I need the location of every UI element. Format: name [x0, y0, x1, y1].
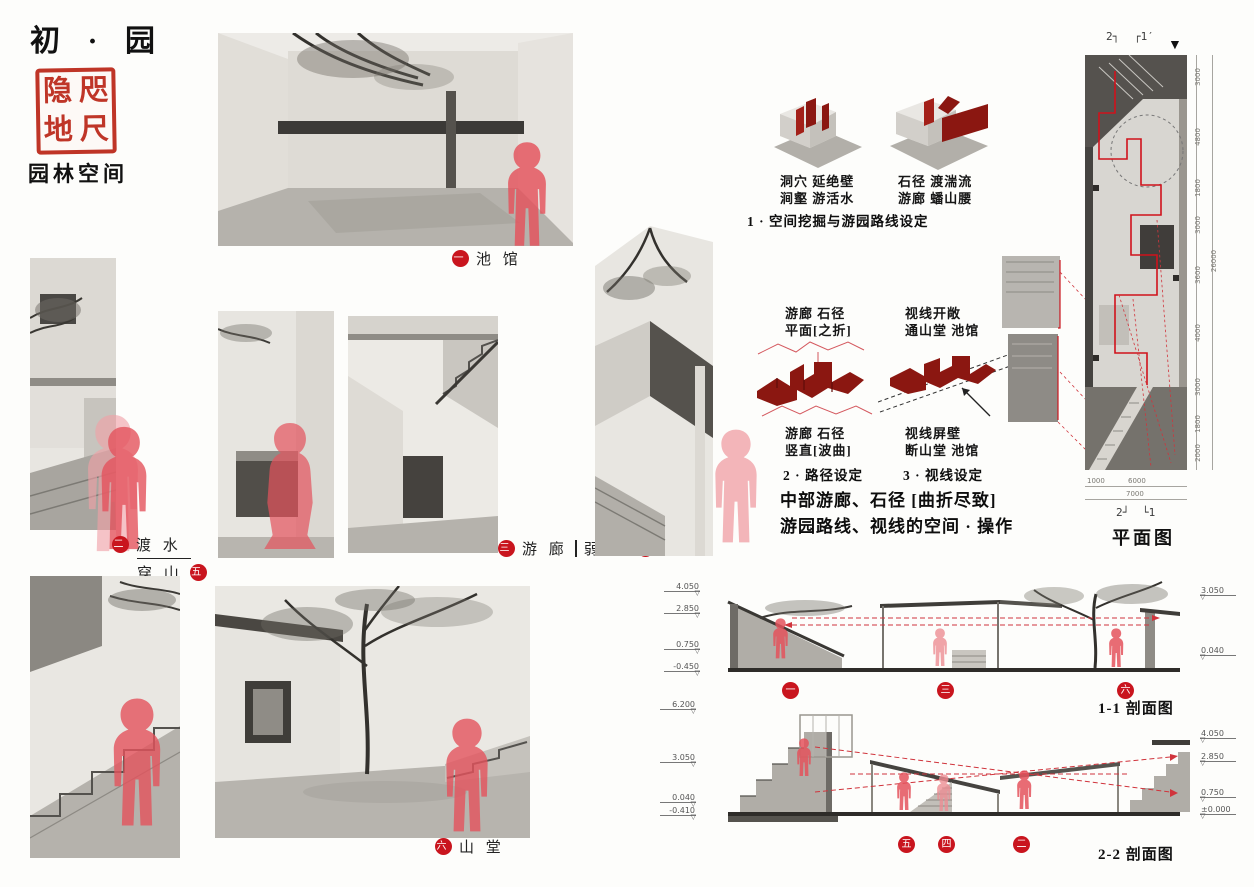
- caption-stonepath: 石径 渡湍流 游廊 蟠山腰: [898, 174, 972, 208]
- axon-diagram-cave: [766, 92, 866, 170]
- level-marker: 4.050▽: [1200, 729, 1236, 743]
- step2-caption-bottom: 游廊 石径 竖直[波曲]: [785, 426, 852, 460]
- label-vertical-divider: [575, 540, 577, 557]
- dim-value: 3000: [1194, 209, 1202, 241]
- step3-caption-bottom: 视线屏壁 断山堂 池馆: [905, 426, 979, 460]
- red-seal-stamp: 隐 咫 地 尺: [35, 67, 116, 154]
- page-title: 初 · 园: [30, 16, 165, 60]
- step2-caption-top: 游廊 石径 平面[之折]: [785, 306, 852, 340]
- number-badge: 五: [898, 836, 915, 853]
- step1-title: 1 · 空间挖掘与游园路线设定: [747, 210, 929, 230]
- level-marker: -0.410▽: [660, 806, 696, 820]
- plan-label: 平面图: [1112, 524, 1175, 550]
- section-marker-bottom-left: 2┘: [1116, 506, 1129, 519]
- number-badge: 一: [782, 682, 799, 699]
- caption-cave: 洞穴 延绝壁 涧壑 游活水: [780, 174, 854, 208]
- sketch-tall-passage: [595, 226, 713, 556]
- level-marker: 0.040▽: [660, 793, 696, 807]
- seal-char: 地: [44, 116, 74, 146]
- number-badge: 二: [112, 536, 129, 553]
- label-pool-pavilion: 一 池 馆: [452, 248, 522, 269]
- section-marker-bottom-right: └1: [1142, 506, 1155, 519]
- level-marker: ±0.000▽: [1200, 805, 1236, 819]
- label-divider: [137, 558, 191, 559]
- dim-value: 2000: [1194, 437, 1202, 469]
- summary-text: 中部游廊、石径 [曲折尽致] 游园路线、视线的空间 · 操作: [780, 488, 1013, 539]
- presentation-board: 初 · 园 隐 咫 地 尺 园林空间 一 池 馆: [0, 0, 1254, 887]
- step2-title: 2 · 路径设定: [783, 464, 863, 484]
- section-2-2-label: 2-2 剖面图: [1098, 843, 1174, 864]
- pink-figure-profile: [712, 412, 760, 560]
- plan-drawing: [1085, 55, 1187, 470]
- dim-value: 4800: [1194, 121, 1202, 153]
- section-marker-top-left: 2┐: [1106, 30, 1119, 43]
- sightline-diagram: [878, 330, 1018, 430]
- sketch-stair-court: [30, 576, 180, 858]
- level-marker: 3.050▽: [660, 753, 696, 767]
- label-text: 游 廊: [522, 538, 568, 559]
- dimension-line: [1085, 486, 1187, 487]
- sketch-left-wall: [30, 258, 116, 530]
- path-diagram: [752, 336, 880, 432]
- axon-diagram-stonepath: [884, 88, 992, 176]
- sketch-niche: [218, 311, 334, 558]
- label-text: 池 馆: [476, 248, 522, 269]
- page-subtitle: 园林空间: [28, 158, 128, 188]
- level-marker: 3.050▽: [1200, 586, 1236, 600]
- number-badge: 二: [1013, 836, 1030, 853]
- level-marker: 0.040▽: [1200, 646, 1236, 660]
- label-text: 渡 水: [136, 534, 182, 555]
- seal-char: 咫: [79, 76, 109, 106]
- number-badge: 一: [452, 250, 469, 267]
- dim-value: 1000: [1087, 477, 1105, 485]
- number-badge: 三: [498, 540, 515, 557]
- dim-value: 3000: [1194, 61, 1202, 93]
- section-1-1-drawing: [700, 578, 1200, 688]
- dim-value: 4000: [1194, 317, 1202, 349]
- dim-value: 6000: [1128, 477, 1146, 485]
- level-marker: 6.200▽: [660, 700, 696, 714]
- level-marker: 0.750▽: [1200, 788, 1236, 802]
- sketch-pool-pavilion: [218, 33, 573, 246]
- level-marker: -0.450▽: [664, 662, 700, 676]
- level-marker: 0.750▽: [664, 640, 700, 654]
- seal-char: 尺: [80, 115, 110, 145]
- level-marker: 2.850▽: [1200, 752, 1236, 766]
- dim-total: 26000: [1210, 245, 1218, 277]
- number-badge: 五: [190, 564, 207, 581]
- dim-value: 3000: [1194, 371, 1202, 403]
- north-arrow-icon: ▼: [1168, 38, 1182, 54]
- dim-value: 1800: [1194, 408, 1202, 440]
- sketch-stair-hall: [348, 316, 498, 553]
- section-marker-top-right: ┌1′: [1134, 30, 1154, 43]
- level-marker: 4.050▽: [664, 582, 700, 596]
- dimension-line-total: [1085, 499, 1187, 500]
- level-marker: 2.850▽: [664, 604, 700, 618]
- seal-char: 隐: [43, 77, 73, 107]
- number-badge: 四: [938, 836, 955, 853]
- section-2-2-drawing: [700, 712, 1200, 837]
- dim-value: 3600: [1194, 259, 1202, 291]
- sketch-mountain-hall: [215, 586, 530, 838]
- step3-title: 3 · 视线设定: [903, 464, 983, 484]
- dim-value: 1800: [1194, 172, 1202, 204]
- number-badge: 六: [435, 838, 452, 855]
- label-mountain-hall: 六 山 堂: [435, 836, 505, 857]
- number-badge: 三: [937, 682, 954, 699]
- dim-total: 7000: [1126, 490, 1144, 498]
- label-text: 山 堂: [459, 836, 505, 857]
